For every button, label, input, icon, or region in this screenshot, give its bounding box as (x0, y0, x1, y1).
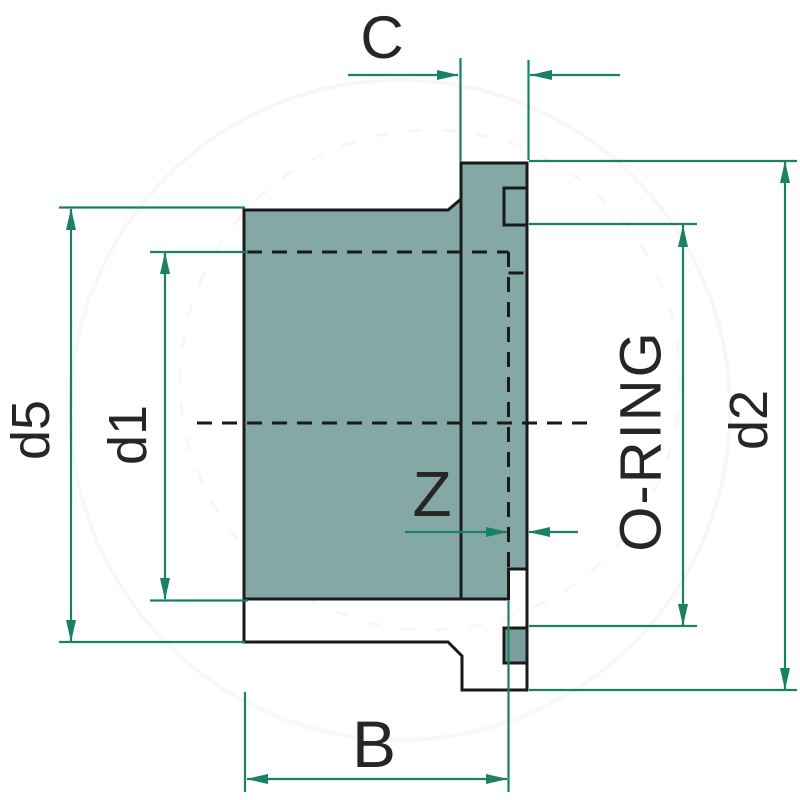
d2-arrow-top (780, 161, 790, 183)
d2-arrow-bottom (780, 668, 790, 690)
dimension-d1: d1 (98, 252, 248, 601)
dim-label-z: Z (412, 458, 451, 530)
c-arrow-left (437, 70, 459, 80)
b-arrow-left (246, 774, 268, 784)
dimension-b: B (245, 601, 509, 792)
dim-label-b: B (352, 707, 396, 781)
d1-arrow-top (160, 252, 170, 274)
dim-label-d2: d2 (719, 390, 779, 450)
drawing-canvas: C d5 d1 Z O-RING (0, 0, 800, 800)
dimension-c: C (348, 4, 620, 162)
dimension-oring: O-RING (529, 224, 697, 626)
dim-label-d1: d1 (98, 405, 158, 465)
dim-label-c: C (360, 4, 403, 71)
oring-groove-top (504, 188, 527, 225)
z-arrow-right (528, 527, 550, 537)
dim-label-oring: O-RING (608, 330, 673, 551)
c-arrow-right (530, 70, 552, 80)
b-arrow-right (486, 774, 508, 784)
technical-drawing-page: C d5 d1 Z O-RING (0, 0, 800, 800)
oring-arrow-bottom (678, 604, 688, 626)
dim-label-d5: d5 (1, 400, 61, 460)
part-body (244, 163, 527, 599)
d5-arrow-bottom (66, 620, 76, 642)
d5-arrow-top (66, 208, 76, 230)
d1-arrow-bottom (160, 578, 170, 600)
